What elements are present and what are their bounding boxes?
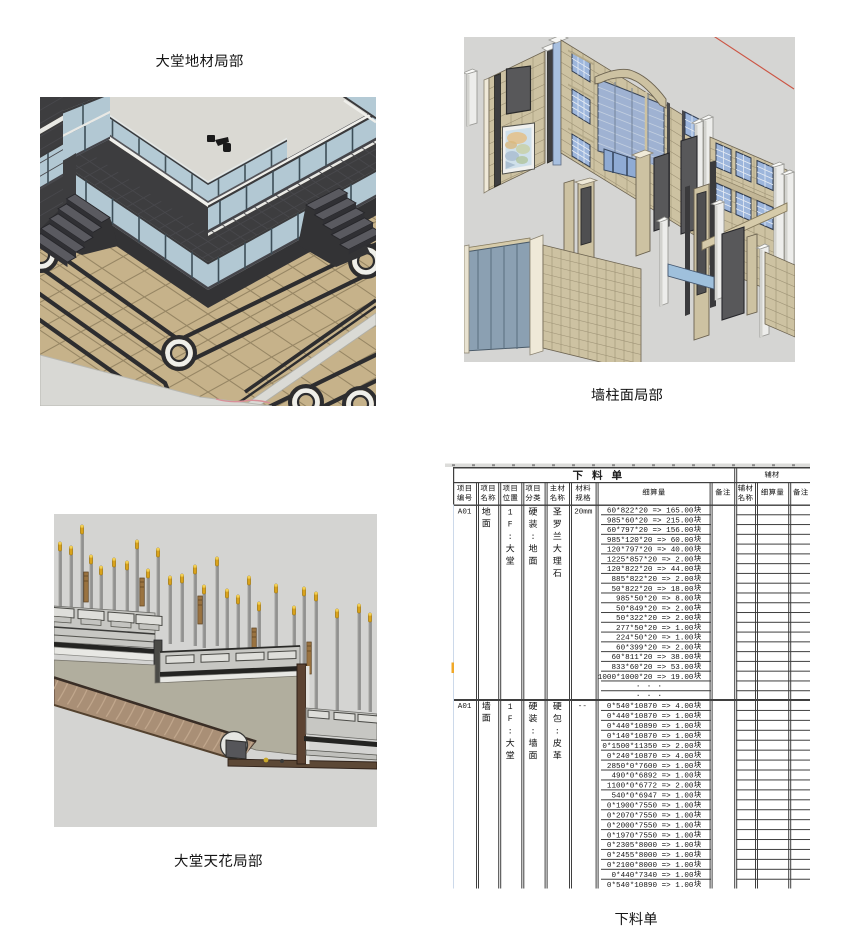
svg-text:0*1900*7550 => 1.00: 0*1900*7550 => 1.00 (607, 802, 694, 810)
svg-text:0*240*10870 => 4.00: 0*240*10870 => 4.00 (607, 753, 694, 761)
svg-text::: : (508, 533, 513, 542)
svg-text::: : (531, 533, 536, 542)
svg-text:540*0*6947 => 1.00: 540*0*6947 => 1.00 (611, 793, 693, 801)
svg-text:1: 1 (508, 508, 513, 517)
svg-text:277*50*20 => 1.00: 277*50*20 => 1.00 (616, 625, 694, 633)
svg-text:F: F (508, 521, 513, 530)
svg-text:50*849*20 => 2.00: 50*849*20 => 2.00 (616, 605, 694, 613)
svg-text:833*60*20 => 53.00: 833*60*20 => 53.00 (611, 664, 693, 672)
svg-text:A01: A01 (458, 703, 472, 711)
svg-text:224*50*20 => 1.00: 224*50*20 => 1.00 (616, 635, 694, 643)
svg-text:885*822*20 => 2.00: 885*822*20 => 2.00 (611, 576, 693, 584)
svg-text:0*2455*8000 => 1.00: 0*2455*8000 => 1.00 (607, 852, 694, 860)
svg-text:0*2000*7550 => 1.00: 0*2000*7550 => 1.00 (607, 822, 694, 830)
svg-text:0*140*10870 => 1.00: 0*140*10870 => 1.00 (607, 733, 694, 741)
svg-text:1: 1 (508, 703, 513, 712)
svg-text:0*440*10870 => 1.00: 0*440*10870 => 1.00 (607, 713, 694, 721)
svg-text:60*822*20 => 165.00: 60*822*20 => 165.00 (607, 508, 694, 516)
svg-text:60*811*20 => 38.00: 60*811*20 => 38.00 (611, 654, 693, 662)
svg-text:0*440*10890 => 1.00: 0*440*10890 => 1.00 (607, 723, 694, 731)
svg-text:···: ··· (636, 692, 668, 701)
svg-text:50*322*20 => 2.00: 50*322*20 => 2.00 (616, 615, 694, 623)
svg-text:490*0*6892 => 1.00: 490*0*6892 => 1.00 (611, 773, 693, 781)
svg-text:20mm: 20mm (574, 509, 593, 517)
svg-text:···: ··· (636, 682, 668, 691)
svg-text:A01: A01 (458, 509, 472, 517)
svg-text:120*797*20 => 40.00: 120*797*20 => 40.00 (607, 547, 694, 555)
svg-text:0*540*10870 => 4.00: 0*540*10870 => 4.00 (607, 703, 694, 711)
svg-text:0*1500*11350 => 2.00: 0*1500*11350 => 2.00 (602, 743, 694, 751)
svg-text:120*822*20 => 44.00: 120*822*20 => 44.00 (607, 566, 694, 574)
svg-text:985*120*20 => 60.00: 985*120*20 => 60.00 (607, 537, 694, 545)
svg-text:2850*0*7600 => 1.00: 2850*0*7600 => 1.00 (607, 763, 694, 771)
svg-text:50*822*20 => 18.00: 50*822*20 => 18.00 (611, 586, 693, 594)
svg-text:60*399*20 => 2.00: 60*399*20 => 2.00 (616, 644, 694, 652)
svg-text:1225*857*20 => 2.00: 1225*857*20 => 2.00 (607, 556, 694, 564)
svg-text::: : (531, 727, 536, 736)
svg-text:1100*0*6772 => 2.00: 1100*0*6772 => 2.00 (607, 783, 694, 791)
svg-text:985*50*20 => 8.00: 985*50*20 => 8.00 (616, 596, 694, 604)
svg-text:985*60*20 => 215.00: 985*60*20 => 215.00 (607, 517, 694, 525)
svg-text:0*2100*8000 => 1.00: 0*2100*8000 => 1.00 (607, 862, 694, 870)
svg-text:60*797*20 => 156.00: 60*797*20 => 156.00 (607, 527, 694, 535)
svg-text:0*440*7340 => 1.00: 0*440*7340 => 1.00 (611, 872, 693, 880)
svg-text:--: -- (578, 703, 587, 711)
svg-text:0*540*10890 => 1.00: 0*540*10890 => 1.00 (607, 882, 694, 890)
svg-text:0*2305*8000 => 1.00: 0*2305*8000 => 1.00 (607, 842, 694, 850)
svg-text::: : (508, 727, 513, 736)
svg-text:F: F (508, 715, 513, 724)
svg-text::: : (555, 727, 560, 736)
svg-text:0*2070*7550 => 1.00: 0*2070*7550 => 1.00 (607, 812, 694, 820)
svg-text:0*1970*7550 => 1.00: 0*1970*7550 => 1.00 (607, 832, 694, 840)
svg-text:1000*1000*20 => 19.00: 1000*1000*20 => 19.00 (598, 674, 694, 682)
